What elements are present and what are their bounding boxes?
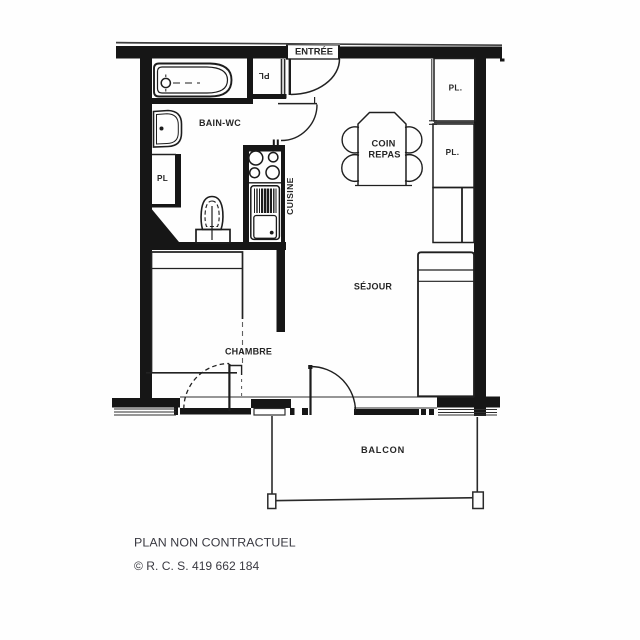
svg-text:PL: PL: [258, 71, 269, 80]
svg-text:© R. C. S. 419 662 184: © R. C. S. 419 662 184: [134, 559, 259, 573]
svg-text:SÉJOUR: SÉJOUR: [354, 282, 393, 292]
svg-text:REPAS: REPAS: [368, 150, 400, 160]
svg-text:PLAN NON CONTRACTUEL: PLAN NON CONTRACTUEL: [134, 536, 296, 550]
svg-text:PL.: PL.: [446, 148, 460, 157]
svg-text:CUISINE: CUISINE: [285, 177, 295, 215]
svg-text:COIN: COIN: [371, 139, 395, 149]
svg-text:BAIN-WC: BAIN-WC: [199, 118, 241, 128]
svg-text:BALCON: BALCON: [361, 445, 405, 455]
svg-text:PL.: PL.: [449, 84, 463, 93]
svg-text:CHAMBRE: CHAMBRE: [225, 347, 272, 357]
svg-text:PL: PL: [157, 174, 168, 183]
svg-text:ENTRÉE: ENTRÉE: [295, 46, 333, 57]
